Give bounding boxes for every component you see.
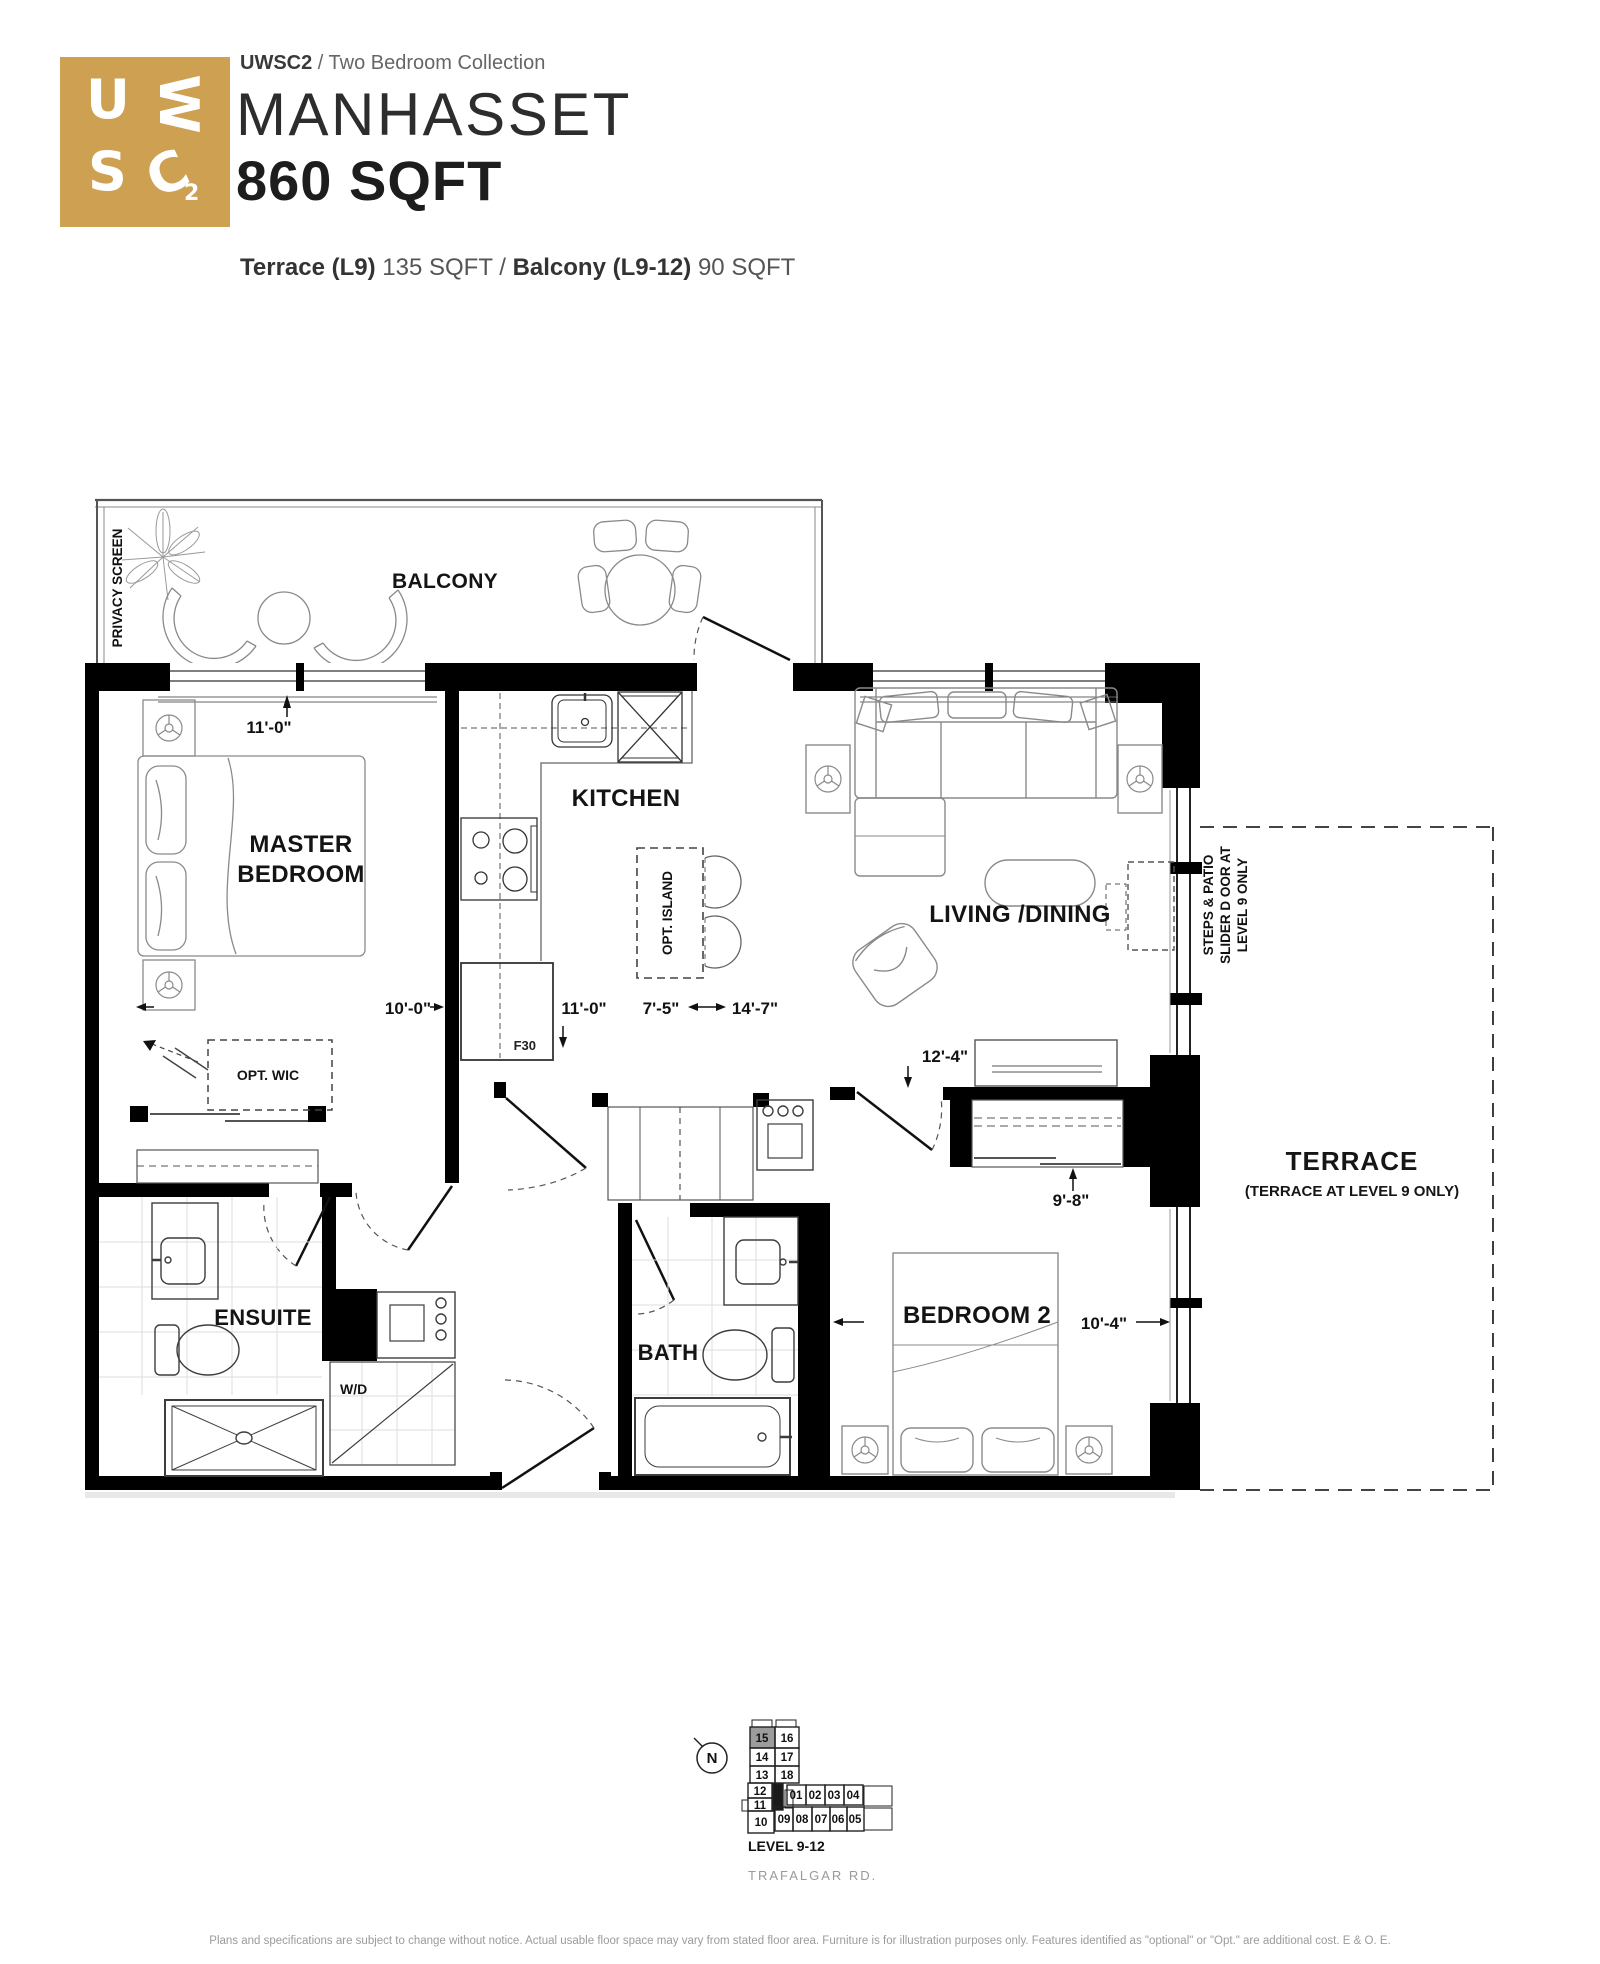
windows: [158, 663, 1190, 1403]
floor-plan: PRIVACY SCREEN BALCONY: [0, 0, 1600, 1964]
dim-living-depth: 12'-4": [922, 1047, 968, 1066]
dim-bedroom2-depth: 10'-4": [1081, 1314, 1127, 1333]
opt-island-label: OPT. ISLAND: [660, 871, 675, 955]
keyplan-unit: 13: [756, 1770, 769, 1782]
island-stools: [705, 856, 741, 968]
keyplan-unit: 10: [755, 1817, 768, 1829]
steps-note-3: LEVEL 9 ONLY: [1235, 858, 1250, 953]
keyplan-unit: 11: [754, 1800, 767, 1812]
terrace-label: TERRACE: [1286, 1146, 1419, 1176]
privacy-screen-label: PRIVACY SCREEN: [110, 529, 125, 648]
tv-console: [975, 1040, 1117, 1086]
bedroom2-label: BEDROOM 2: [903, 1302, 1051, 1329]
master-bedroom-label: MASTER: [249, 831, 352, 858]
bedroom-2: BEDROOM 2: [842, 1100, 1123, 1475]
ensuite-label: ENSUITE: [214, 1305, 311, 1330]
keyplan-unit: 04: [847, 1790, 860, 1802]
master-bedroom-label2: BEDROOM: [237, 861, 364, 888]
terrace-note: (TERRACE AT LEVEL 9 ONLY): [1245, 1183, 1459, 1200]
keyplan-unit: 16: [781, 1733, 794, 1745]
master-closet: [137, 1114, 318, 1183]
keyplan-unit: 05: [849, 1814, 862, 1826]
keyplan-unit: 08: [796, 1814, 809, 1826]
lamp-icon: [815, 766, 841, 792]
stacked-appliance: [757, 1100, 813, 1170]
kitchen-sink: [552, 693, 612, 747]
footer-disclaimer: Plans and specifications are subject to …: [209, 1935, 1390, 1947]
lamp-icon: [156, 715, 182, 741]
living-dining: LIVING /DINING: [806, 688, 1174, 1086]
nightstand: [143, 960, 195, 1010]
steps-note-1: STEPS & PATIO: [1201, 855, 1216, 956]
lamp-icon: [156, 972, 182, 998]
fridge-label: F30: [514, 1038, 536, 1053]
keyplan-unit: 09: [778, 1814, 791, 1826]
keyplan-unit: 03: [828, 1790, 841, 1802]
balcony-area: PRIVACY SCREEN BALCONY: [95, 500, 822, 670]
accent-chair: [847, 917, 944, 1012]
steps-note-2: SLIDER D OOR AT: [1218, 845, 1233, 964]
keyplan-unit: 06: [832, 1814, 845, 1826]
toilet-icon: [703, 1328, 794, 1382]
floorplan-sheet: U W S C 2 UWSC2 / Two Bedroom Collection…: [0, 0, 1600, 1964]
lamp-icon: [1076, 1437, 1102, 1463]
bath-label: BATH: [638, 1340, 699, 1365]
keyplan-unit: 07: [815, 1814, 828, 1826]
ensuite: ENSUITE: [152, 1203, 323, 1476]
lamp-icon: [1127, 766, 1153, 792]
fridge: [461, 963, 553, 1060]
keyplan-unit: 14: [756, 1752, 769, 1764]
dim-island-width: 7'-5": [643, 999, 680, 1018]
wd-label: W/D: [340, 1381, 367, 1397]
nightstand: [1066, 1426, 1112, 1474]
keyplan-unit: 15: [756, 1733, 769, 1745]
dim-kitchen-width: 11'-0": [561, 999, 606, 1018]
north-label: N: [707, 1750, 718, 1767]
optional-desk: [1128, 862, 1174, 950]
dim-master-depth: 10'-0": [385, 999, 431, 1018]
dim-master-width: 11'-0": [246, 718, 291, 737]
keyplan-unit: 12: [754, 1786, 767, 1798]
coffee-table: [985, 860, 1095, 906]
keyplan-street-label: TRAFALGAR RD.: [748, 1868, 877, 1883]
keyplan-unit: 17: [781, 1752, 794, 1764]
keyplan-unit: 01: [790, 1790, 803, 1802]
keyplan-unit: 18: [781, 1770, 794, 1782]
dim-bedroom2-width: 9'-8": [1053, 1191, 1090, 1210]
balcony-dining-set: [577, 520, 702, 625]
bath: BATH: [635, 1217, 798, 1475]
keyplan-level-label: LEVEL 9-12: [748, 1838, 825, 1854]
bed: [893, 1253, 1058, 1475]
balcony-lounge-chairs: [163, 588, 407, 670]
stove: [461, 818, 537, 900]
balcony-label: BALCONY: [392, 570, 498, 593]
shower-icon: [165, 1400, 323, 1476]
bedroom2-closet: [972, 1100, 1123, 1167]
dishwasher: [618, 692, 682, 762]
dim-living-width: 14'-7": [732, 999, 778, 1018]
opt-wic-label: OPT. WIC: [237, 1067, 299, 1083]
kitchen-label: KITCHEN: [572, 785, 681, 812]
foyer-closet: [608, 1107, 753, 1200]
lamp-icon: [852, 1437, 878, 1463]
key-plan: N 15 16 14 17 13: [694, 1720, 892, 1883]
north-icon: N: [694, 1738, 727, 1773]
nightstand: [143, 700, 195, 756]
sofa: [855, 688, 1117, 876]
bathtub-icon: [635, 1398, 792, 1475]
keyplan-unit: 02: [809, 1790, 822, 1802]
master-bedroom: MASTER BEDROOM OPT. WIC: [137, 700, 365, 1183]
side-table: [1118, 745, 1162, 813]
side-table: [806, 745, 850, 813]
nightstand: [842, 1426, 888, 1474]
tile-grid: [99, 1197, 798, 1465]
living-dining-label: LIVING /DINING: [929, 901, 1111, 928]
plant-icon: [122, 509, 205, 600]
terrace: TERRACE (TERRACE AT LEVEL 9 ONLY) STEPS …: [1200, 827, 1493, 1490]
